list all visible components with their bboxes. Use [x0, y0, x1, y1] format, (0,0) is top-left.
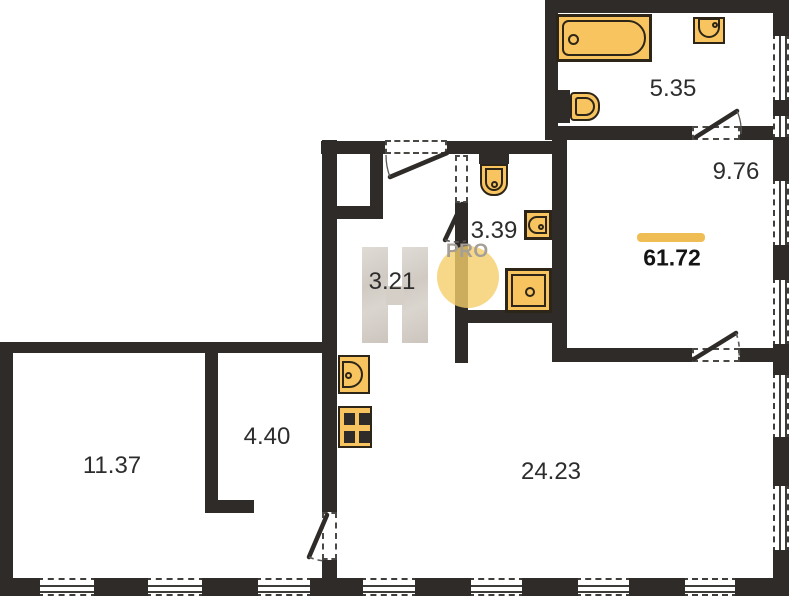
door-leaf: [309, 515, 327, 557]
area-label-hallway: 3.21: [369, 268, 416, 296]
door-leaf: [445, 204, 462, 240]
door-leaf: [696, 111, 737, 137]
door-swing-arc: [309, 557, 325, 561]
area-label-wc: 3.39: [471, 217, 518, 245]
area-label-bedroom: 9.76: [713, 158, 760, 186]
door-leaf: [390, 153, 447, 177]
area-label-bathroom: 5.35: [650, 75, 697, 103]
door-swing-arc: [736, 333, 739, 357]
door-swing-arc: [386, 155, 390, 177]
door-leaf: [694, 333, 736, 359]
area-label-wardrobe: 4.40: [244, 423, 291, 451]
total-area-label: 61.72: [643, 245, 701, 272]
floor-plan: H PRO 5.35 9.76 3.39 3.21 11.37 4.40 24.…: [0, 0, 789, 600]
area-label-kitchen-living: 24.23: [521, 458, 581, 486]
area-label-living-room: 11.37: [83, 452, 141, 480]
door-swing-arc: [737, 111, 741, 134]
